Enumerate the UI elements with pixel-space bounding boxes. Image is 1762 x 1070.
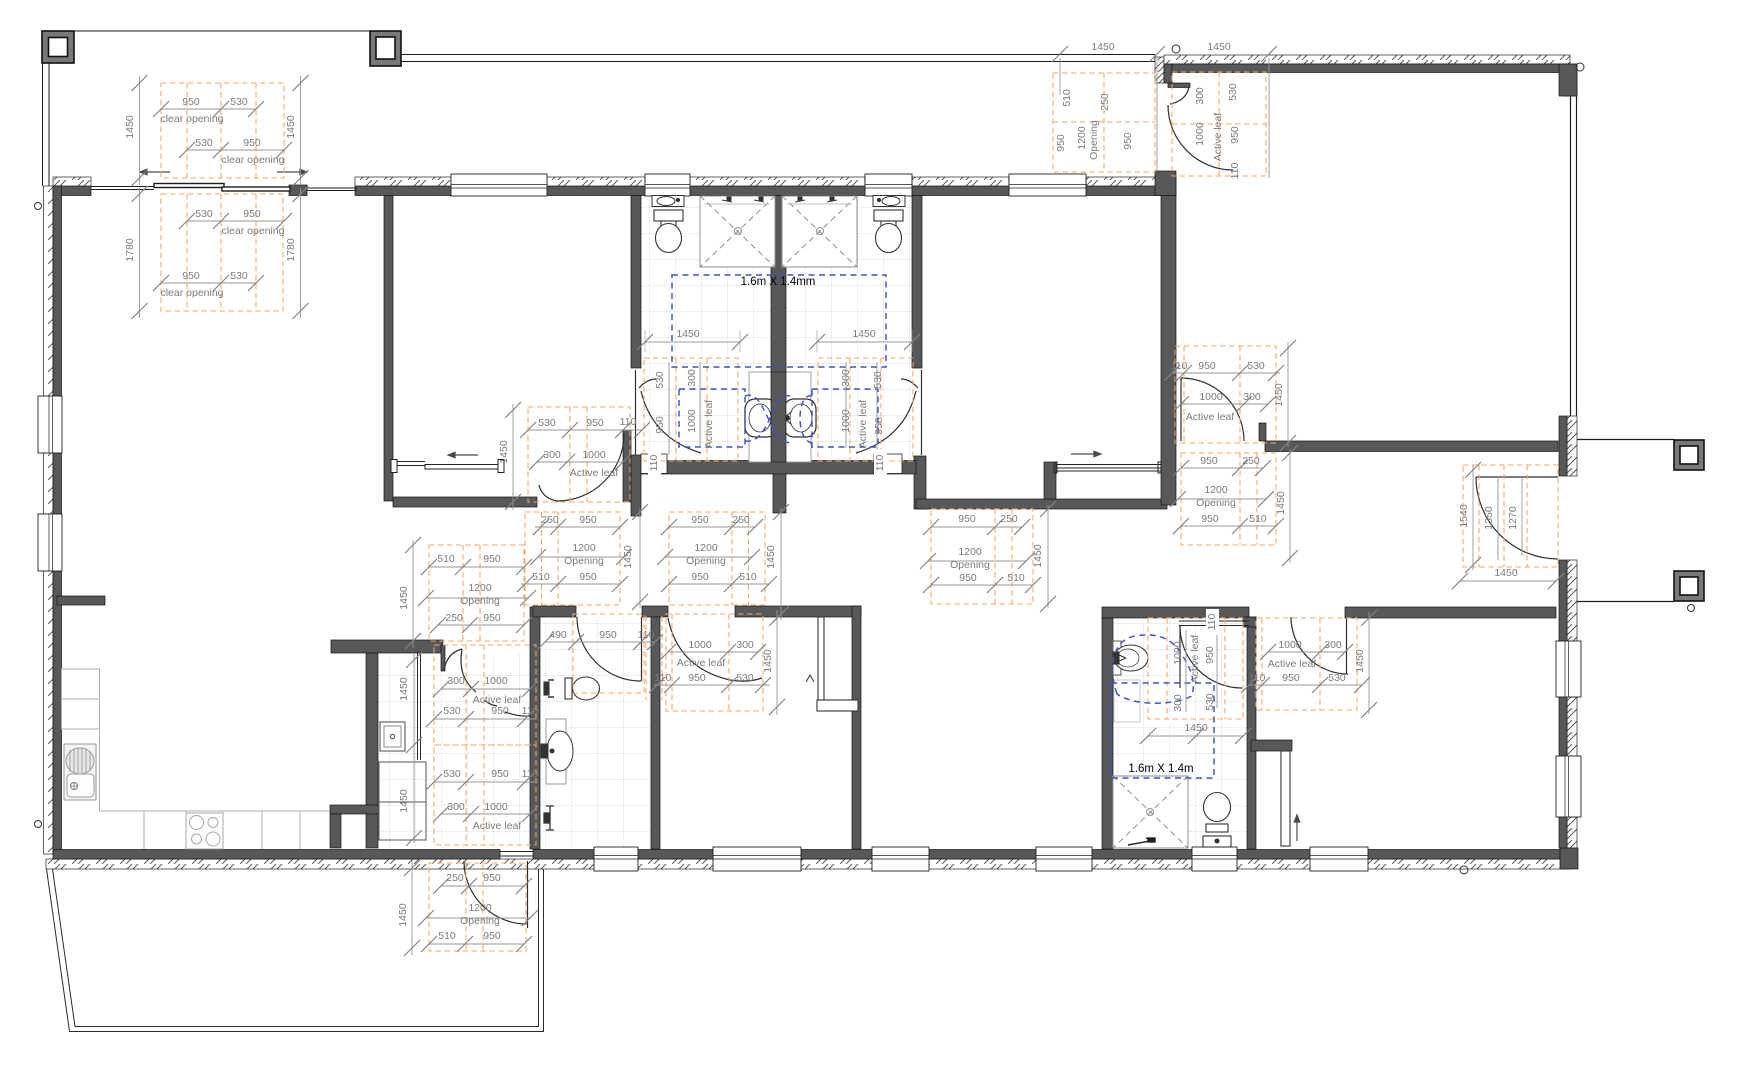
svg-text:950: 950 xyxy=(579,514,597,526)
svg-text:950: 950 xyxy=(1204,646,1216,664)
svg-text:950: 950 xyxy=(1229,126,1241,144)
svg-text:Opening: Opening xyxy=(564,555,604,567)
svg-text:1350: 1350 xyxy=(1483,506,1495,530)
svg-text:1000: 1000 xyxy=(484,675,508,687)
svg-text:Active leaf: Active leaf xyxy=(570,467,619,479)
svg-text:510: 510 xyxy=(532,571,550,583)
svg-text:110: 110 xyxy=(1229,162,1241,179)
svg-text:950: 950 xyxy=(483,553,501,565)
svg-text:1.6m X 1.4mm: 1.6m X 1.4mm xyxy=(741,276,816,288)
svg-text:300: 300 xyxy=(447,675,465,687)
svg-text:1200: 1200 xyxy=(694,542,718,554)
svg-text:530: 530 xyxy=(736,672,754,684)
svg-text:1000: 1000 xyxy=(582,449,606,461)
svg-text:530: 530 xyxy=(538,417,556,429)
svg-text:Active leaf: Active leaf xyxy=(473,820,522,832)
svg-text:950: 950 xyxy=(182,96,200,108)
svg-text:1200: 1200 xyxy=(572,542,596,554)
svg-text:Active leaf: Active leaf xyxy=(1268,658,1317,670)
svg-text:530: 530 xyxy=(195,208,213,220)
svg-text:530: 530 xyxy=(195,137,213,149)
svg-text:1000: 1000 xyxy=(484,801,508,813)
svg-text:950: 950 xyxy=(491,705,509,717)
svg-text:950: 950 xyxy=(483,872,501,884)
svg-text:950: 950 xyxy=(1201,513,1219,525)
svg-text:490: 490 xyxy=(549,629,567,641)
svg-text:1450: 1450 xyxy=(676,328,700,340)
svg-text:950: 950 xyxy=(691,514,709,526)
svg-text:510: 510 xyxy=(739,571,757,583)
svg-text:300: 300 xyxy=(686,369,698,387)
svg-text:110: 110 xyxy=(874,454,886,471)
svg-text:950: 950 xyxy=(873,417,885,435)
svg-text:300: 300 xyxy=(1194,87,1206,105)
svg-text:530: 530 xyxy=(1247,360,1265,372)
svg-text:1.6m X 1.4m: 1.6m X 1.4m xyxy=(1128,763,1193,775)
svg-text:950: 950 xyxy=(691,571,709,583)
svg-text:1200: 1200 xyxy=(468,582,492,594)
svg-text:Opening: Opening xyxy=(1088,120,1100,160)
svg-text:950: 950 xyxy=(1282,672,1300,684)
svg-text:1450: 1450 xyxy=(398,677,410,701)
svg-text:530: 530 xyxy=(230,270,248,282)
svg-text:1000: 1000 xyxy=(1278,639,1302,651)
svg-text:1000: 1000 xyxy=(1194,122,1206,146)
svg-text:950: 950 xyxy=(483,612,501,624)
svg-text:1450: 1450 xyxy=(1273,383,1285,407)
svg-text:950: 950 xyxy=(599,629,617,641)
svg-text:250: 250 xyxy=(541,514,559,526)
svg-text:clear opening: clear opening xyxy=(160,113,223,125)
svg-text:Opening: Opening xyxy=(686,555,726,567)
svg-text:1000: 1000 xyxy=(686,409,698,433)
svg-text:510: 510 xyxy=(1007,572,1025,584)
svg-text:Opening: Opening xyxy=(1196,497,1236,509)
svg-text:1450: 1450 xyxy=(622,545,634,569)
svg-text:250: 250 xyxy=(1000,513,1018,525)
svg-text:1000: 1000 xyxy=(688,639,712,651)
svg-text:510: 510 xyxy=(1249,513,1267,525)
svg-text:510: 510 xyxy=(1061,89,1073,107)
svg-text:110: 110 xyxy=(1249,672,1266,684)
svg-text:300: 300 xyxy=(543,449,561,461)
svg-text:1000: 1000 xyxy=(840,409,852,433)
svg-text:Active leaf: Active leaf xyxy=(677,657,726,669)
svg-text:1450: 1450 xyxy=(1275,491,1287,515)
svg-text:250: 250 xyxy=(732,514,750,526)
svg-text:250: 250 xyxy=(446,872,464,884)
svg-text:1450: 1450 xyxy=(285,115,297,139)
svg-text:950: 950 xyxy=(182,270,200,282)
svg-text:Active leaf: Active leaf xyxy=(857,400,869,449)
svg-text:Active leaf: Active leaf xyxy=(703,400,715,449)
svg-text:clear opening: clear opening xyxy=(221,154,284,166)
svg-text:250: 250 xyxy=(445,612,463,624)
svg-text:300: 300 xyxy=(1172,694,1184,712)
svg-text:530: 530 xyxy=(654,371,666,389)
svg-text:1450: 1450 xyxy=(765,545,777,569)
svg-text:530: 530 xyxy=(1227,83,1239,101)
svg-text:1780: 1780 xyxy=(124,238,136,262)
svg-text:950: 950 xyxy=(1055,134,1067,152)
svg-text:1450: 1450 xyxy=(398,789,410,813)
svg-text:110: 110 xyxy=(638,629,655,641)
svg-text:950: 950 xyxy=(688,672,706,684)
svg-text:Opening: Opening xyxy=(950,559,990,571)
svg-text:530: 530 xyxy=(443,705,461,717)
svg-text:250: 250 xyxy=(1099,93,1111,111)
svg-text:950: 950 xyxy=(1198,360,1216,372)
svg-text:1450: 1450 xyxy=(398,586,410,610)
svg-text:1450: 1450 xyxy=(852,328,876,340)
svg-text:950: 950 xyxy=(243,137,261,149)
svg-text:1450: 1450 xyxy=(1032,544,1044,568)
svg-text:1450: 1450 xyxy=(1354,649,1366,673)
svg-text:1200: 1200 xyxy=(1204,484,1228,496)
svg-text:1450: 1450 xyxy=(762,649,774,673)
svg-text:950: 950 xyxy=(491,768,509,780)
svg-text:110: 110 xyxy=(648,454,660,471)
svg-text:1450: 1450 xyxy=(124,115,136,139)
svg-text:110: 110 xyxy=(655,672,672,684)
svg-text:530: 530 xyxy=(443,768,461,780)
svg-text:1000: 1000 xyxy=(1199,391,1223,403)
svg-text:1200: 1200 xyxy=(958,546,982,558)
svg-text:1780: 1780 xyxy=(285,238,297,262)
svg-text:Active leaf: Active leaf xyxy=(1189,635,1201,684)
svg-text:1450: 1450 xyxy=(498,440,510,464)
svg-text:950: 950 xyxy=(654,416,666,434)
svg-text:1450: 1450 xyxy=(1494,567,1518,579)
svg-text:950: 950 xyxy=(586,417,604,429)
svg-text:1450: 1450 xyxy=(1091,41,1115,53)
svg-text:950: 950 xyxy=(1200,455,1218,467)
svg-text:950: 950 xyxy=(959,572,977,584)
svg-text:110: 110 xyxy=(620,416,637,428)
svg-text:110: 110 xyxy=(522,705,539,717)
svg-text:300: 300 xyxy=(840,369,852,387)
svg-text:300: 300 xyxy=(447,801,465,813)
svg-text:950: 950 xyxy=(243,208,261,220)
svg-text:1450: 1450 xyxy=(1184,722,1208,734)
svg-text:950: 950 xyxy=(483,930,501,942)
svg-text:530: 530 xyxy=(872,371,884,389)
svg-text:clear opening: clear opening xyxy=(160,287,223,299)
svg-text:950: 950 xyxy=(579,571,597,583)
svg-text:Opening: Opening xyxy=(460,595,500,607)
svg-text:510: 510 xyxy=(437,553,455,565)
svg-text:300: 300 xyxy=(736,639,754,651)
svg-text:clear opening: clear opening xyxy=(221,225,284,237)
svg-text:Active leaf: Active leaf xyxy=(1186,411,1235,423)
svg-text:Active leaf: Active leaf xyxy=(1212,113,1224,162)
svg-text:1540: 1540 xyxy=(1458,504,1470,528)
svg-text:110: 110 xyxy=(1171,360,1188,372)
svg-text:250: 250 xyxy=(1242,455,1260,467)
svg-text:530: 530 xyxy=(1204,693,1216,711)
svg-text:530: 530 xyxy=(1328,672,1346,684)
svg-text:1270: 1270 xyxy=(1507,506,1519,530)
svg-text:1200: 1200 xyxy=(1076,126,1088,150)
svg-text:1450: 1450 xyxy=(1207,41,1231,53)
svg-text:1200: 1200 xyxy=(468,902,492,914)
svg-text:510: 510 xyxy=(438,930,456,942)
svg-text:950: 950 xyxy=(1122,132,1134,150)
svg-text:300: 300 xyxy=(1243,391,1261,403)
svg-text:Opening: Opening xyxy=(460,915,500,927)
svg-text:300: 300 xyxy=(1324,639,1342,651)
svg-text:110: 110 xyxy=(1206,613,1218,630)
svg-text:1450: 1450 xyxy=(397,903,409,927)
svg-text:530: 530 xyxy=(230,96,248,108)
svg-text:950: 950 xyxy=(958,513,976,525)
svg-text:1000: 1000 xyxy=(1172,641,1184,665)
svg-text:110: 110 xyxy=(522,768,539,780)
